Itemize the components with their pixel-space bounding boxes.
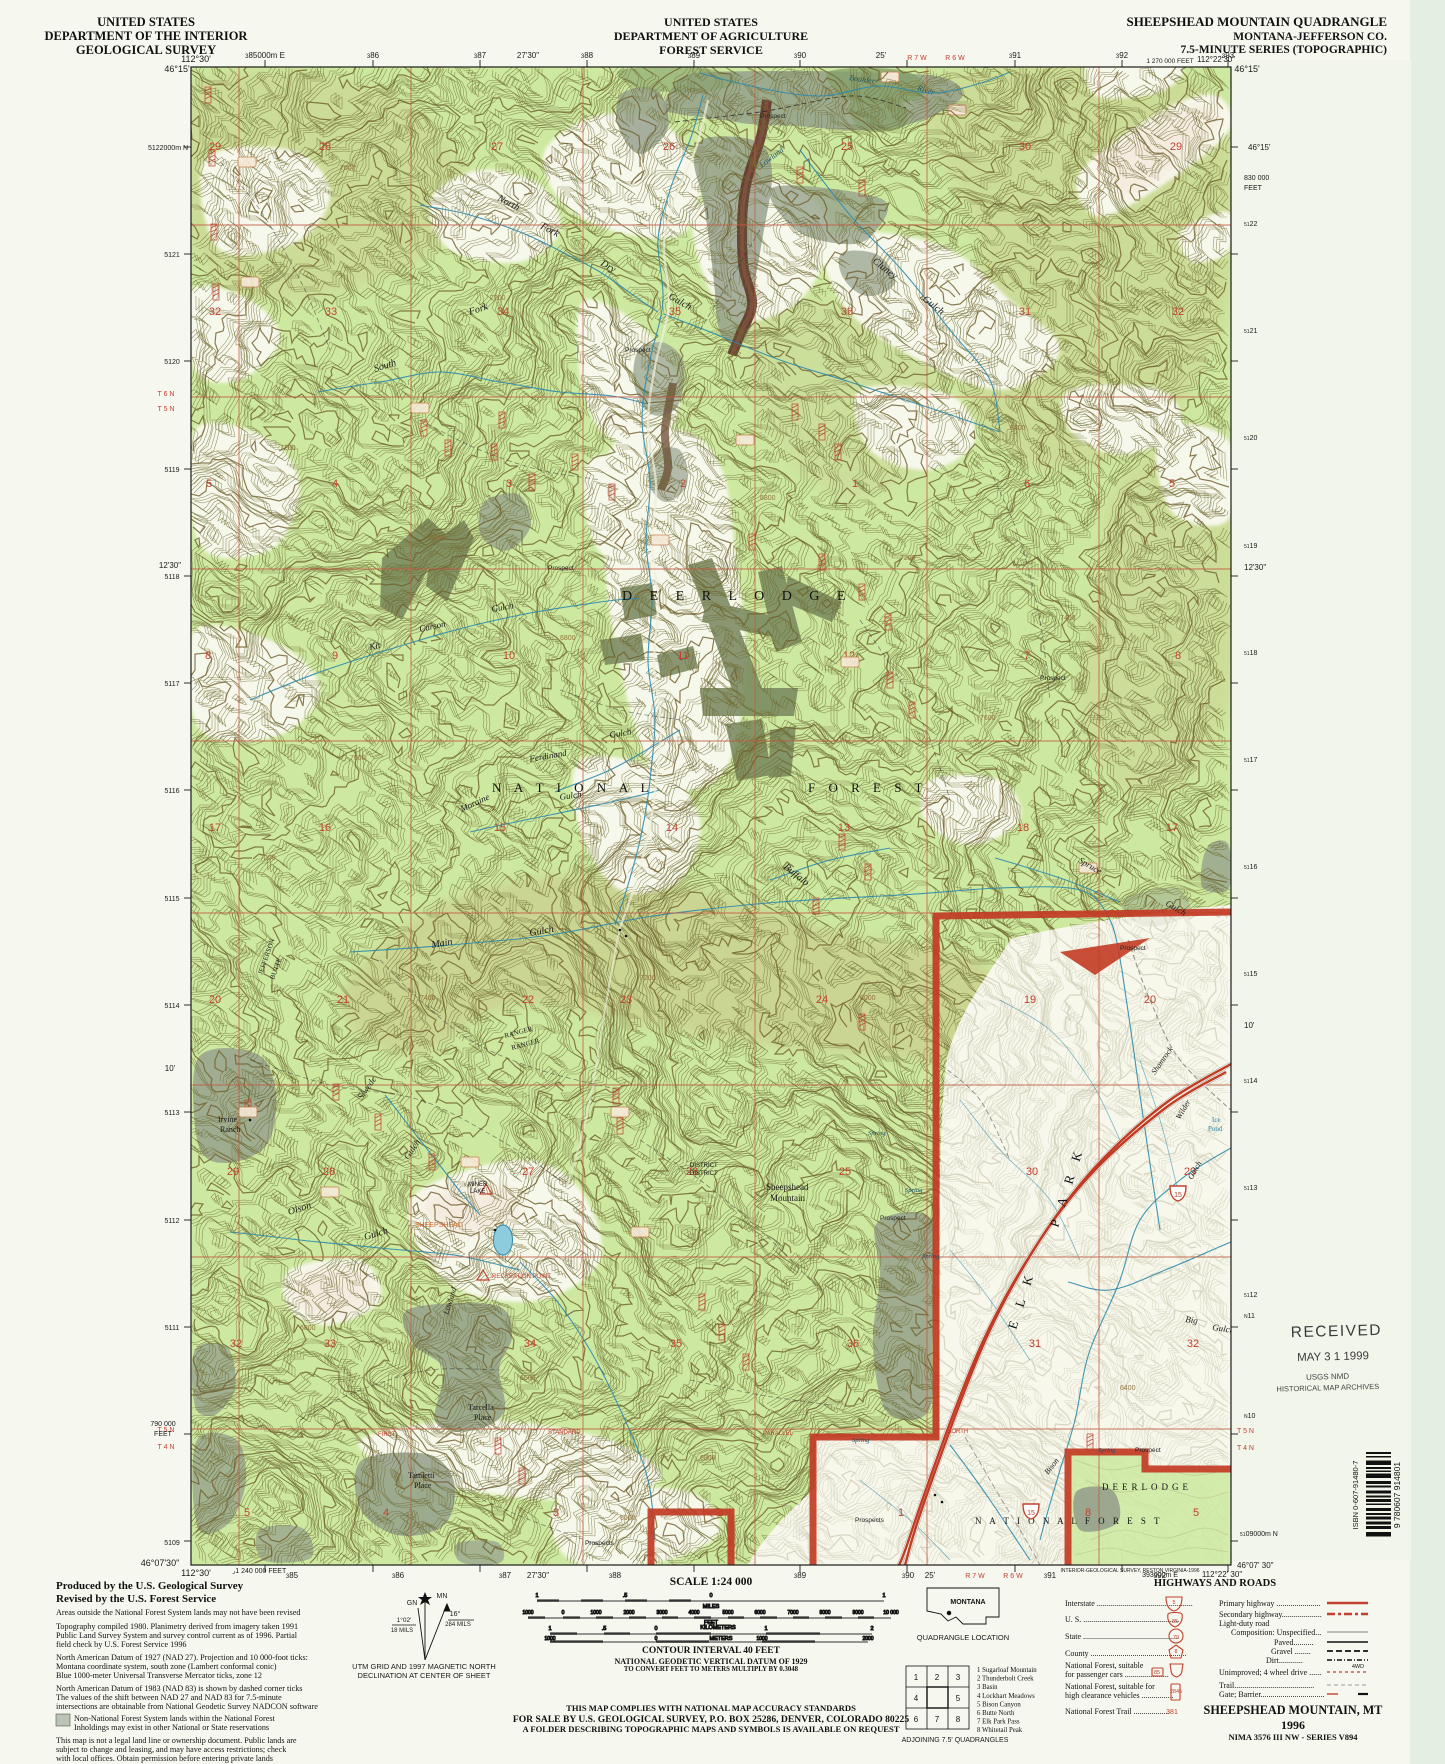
svg-text:7200: 7200 [640, 975, 656, 982]
svg-text:Paved..........: Paved.......... [1274, 1638, 1314, 1647]
svg-text:N10: N10 [1244, 1413, 1256, 1420]
svg-text:7200: 7200 [900, 555, 916, 562]
svg-text:5120: 5120 [1244, 435, 1257, 442]
svg-text:N A T I O N A L: N A T I O N A L [492, 780, 654, 795]
svg-text:R 7 W: R 7 W [965, 1573, 985, 1580]
svg-text:Areas outside the National For: Areas outside the National Forest System… [56, 1608, 300, 1617]
svg-text:8000: 8000 [819, 1610, 830, 1616]
svg-text:5119: 5119 [164, 467, 179, 474]
svg-text:5113: 5113 [164, 1110, 179, 1117]
svg-text:2: 2 [935, 1673, 940, 1682]
svg-text:5109000m N: 5109000m N [1240, 1531, 1278, 1538]
svg-text:5: 5 [206, 478, 212, 490]
svg-text:7: 7 [1024, 650, 1030, 662]
svg-text:16: 16 [319, 822, 331, 834]
svg-text:5112: 5112 [1244, 1292, 1257, 1299]
svg-text:5121: 5121 [164, 252, 180, 259]
svg-text:5: 5 [1193, 1507, 1199, 1519]
svg-text:5 Bison Canyon: 5 Bison Canyon [977, 1701, 1021, 1708]
svg-text:1000: 1000 [590, 1610, 601, 1616]
svg-text:5114: 5114 [1244, 1078, 1257, 1085]
svg-text:5109: 5109 [164, 1540, 180, 1547]
svg-text:24: 24 [816, 994, 828, 1006]
svg-text:3000: 3000 [656, 1610, 667, 1616]
svg-text:TO CONVERT FEET TO METERS MULT: TO CONVERT FEET TO METERS MULTIPLY BY 0.… [624, 1666, 799, 1673]
svg-text:5118: 5118 [1244, 650, 1257, 657]
svg-text:2: 2 [717, 1507, 723, 1519]
svg-text:381: 381 [1166, 1709, 1178, 1716]
svg-text:N A T I O N A L F O R E S T: N A T I O N A L F O R E S T [975, 1516, 1162, 1526]
svg-text:T 6 N: T 6 N [158, 391, 175, 398]
svg-text:19: 19 [1024, 994, 1036, 1006]
svg-text:6600: 6600 [520, 1375, 536, 1382]
svg-text:County .......................: County .................................… [1065, 1649, 1187, 1658]
svg-text:1: 1 [914, 1673, 919, 1682]
svg-text:.5: .5 [623, 1593, 628, 1599]
svg-text:790 000: 790 000 [150, 1421, 175, 1428]
svg-text:16°: 16° [450, 1610, 461, 1618]
svg-text:15: 15 [1174, 1192, 1182, 1199]
svg-text:10': 10' [1244, 1021, 1255, 1030]
svg-text:32: 32 [209, 306, 221, 318]
svg-text:30: 30 [1019, 141, 1031, 153]
svg-text:5112: 5112 [164, 1218, 179, 1225]
svg-text:Produced by the U.S. Geologica: Produced by the U.S. Geological Survey [56, 1580, 244, 1592]
svg-text:15: 15 [494, 822, 506, 834]
svg-text:7000: 7000 [350, 755, 366, 762]
svg-text:National Forest Trail ........: National Forest Trail .................. [1065, 1707, 1170, 1716]
svg-text:RECEIVED: RECEIVED [1291, 1322, 1383, 1341]
svg-text:2 Thunderbolt Creek: 2 Thunderbolt Creek [977, 1676, 1034, 1683]
svg-text:6800: 6800 [760, 495, 776, 502]
svg-text:18: 18 [1017, 822, 1029, 834]
svg-text:7400: 7400 [420, 995, 436, 1002]
svg-text:North American Datum of 1983 (: North American Datum of 1983 (NAD 83) is… [56, 1684, 302, 1693]
svg-text:high clearance vehicles ......: high clearance vehicles ................ [1065, 1691, 1174, 1700]
svg-text:FEET: FEET [1244, 185, 1263, 192]
svg-text:Public Land Survey System and: Public Land Survey System and survey con… [56, 1631, 298, 1640]
svg-text:6800: 6800 [300, 1325, 316, 1332]
svg-text:F O R E S T: F O R E S T [808, 780, 927, 795]
svg-text:Spring: Spring [852, 1437, 870, 1444]
svg-text:Prospect: Prospect [548, 565, 574, 572]
svg-text:8: 8 [956, 1715, 961, 1724]
svg-text:5: 5 [1169, 478, 1175, 490]
svg-text:Montana coordinate system, sou: Montana coordinate system, south zone (L… [56, 1662, 277, 1671]
svg-text:7400: 7400 [1060, 615, 1076, 622]
svg-text:284 MILS: 284 MILS [445, 1622, 471, 1628]
svg-text:15: 15 [1027, 1510, 1035, 1517]
svg-text:.5: .5 [602, 1626, 607, 1632]
svg-text:27: 27 [491, 141, 503, 153]
svg-text:GN: GN [407, 1600, 418, 1607]
svg-text:North American Datum of 1927 (: North American Datum of 1927 (NAD 27). P… [56, 1653, 308, 1662]
svg-text:LAKE: LAKE [470, 1189, 485, 1195]
svg-text:46°07'30": 46°07'30" [141, 1558, 180, 1568]
svg-text:1 Sugarloaf Mountain: 1 Sugarloaf Mountain [977, 1667, 1037, 1674]
svg-text:State ........................: State ..................................… [1065, 1632, 1179, 1641]
svg-text:Prospect: Prospect [1120, 945, 1146, 952]
svg-text:field check by U.S. Forest Ser: field check by U.S. Forest Service 1996 [56, 1640, 187, 1649]
svg-text:with local offices. Obtain pe: with local offices. Obtain permission be… [56, 1754, 273, 1763]
svg-text:5122: 5122 [1244, 221, 1257, 228]
svg-text:3 Basin: 3 Basin [977, 1684, 998, 1691]
svg-text:6600: 6600 [620, 1515, 636, 1522]
svg-text:5115: 5115 [1244, 971, 1257, 978]
svg-text:3: 3 [956, 1673, 961, 1682]
svg-text:FIRST: FIRST [378, 1432, 396, 1438]
svg-text:Composition: Unspecified...: Composition: Unspecified... [1231, 1628, 1321, 1637]
svg-text:5000: 5000 [722, 1610, 733, 1616]
svg-text:Gate; Barrier.................: Gate; Barrier...........................… [1219, 1690, 1325, 1699]
svg-text:Spring: Spring [905, 1187, 923, 1194]
svg-text:National Forest, suitable for: National Forest, suitable for [1065, 1682, 1155, 1691]
svg-text:NORTH: NORTH [947, 1429, 968, 1435]
svg-text:5120: 5120 [164, 359, 180, 366]
svg-text:1996: 1996 [1281, 1718, 1305, 1732]
svg-text:MONTANA: MONTANA [950, 1599, 985, 1606]
svg-text:Unimproved; 4 wheel drive ....: Unimproved; 4 wheel drive ...... [1219, 1668, 1321, 1677]
svg-text:FOREST SERVICE: FOREST SERVICE [659, 43, 763, 57]
svg-text:MONTANA-JEFFERSON CO.: MONTANA-JEFFERSON CO. [1233, 31, 1387, 43]
svg-text:7000: 7000 [340, 165, 356, 172]
svg-text:23: 23 [620, 994, 632, 1006]
svg-text:7000: 7000 [787, 1610, 798, 1616]
svg-text:2845: 2845 [1170, 1689, 1182, 1695]
svg-text:13: 13 [838, 822, 850, 834]
svg-text:USGS NMD: USGS NMD [1306, 1372, 1350, 1382]
svg-text:1: 1 [548, 1626, 551, 1632]
svg-text:5116: 5116 [1244, 864, 1257, 871]
svg-text:5117: 5117 [1244, 757, 1257, 764]
svg-text:Spring: Spring [868, 1130, 886, 1137]
svg-text:830 000: 830 000 [1244, 175, 1269, 182]
svg-text:Secondary highway.............: Secondary highway.................... [1219, 1610, 1322, 1619]
svg-text:5122000m N: 5122000m N [148, 145, 188, 152]
svg-text:6400: 6400 [1120, 1385, 1136, 1392]
svg-text:7 Elk Park Pass: 7 Elk Park Pass [977, 1719, 1020, 1726]
svg-text:8: 8 [1175, 650, 1181, 662]
svg-text:21: 21 [337, 994, 349, 1006]
svg-text:6800: 6800 [430, 535, 446, 542]
svg-text:UTM GRID AND 1997 MAGNETIC NOR: UTM GRID AND 1997 MAGNETIC NORTH [352, 1662, 496, 1671]
svg-text:27'30": 27'30" [527, 1571, 549, 1580]
svg-text:17: 17 [209, 822, 221, 834]
svg-text:5116: 5116 [164, 788, 179, 795]
svg-text:RECREATION POINT: RECREATION POINT [492, 1274, 551, 1280]
svg-text:8 Whitetail Peak: 8 Whitetail Peak [977, 1727, 1023, 1734]
svg-text:32: 32 [1172, 306, 1184, 318]
svg-text:R 6 W: R 6 W [945, 55, 965, 62]
svg-text:5121: 5121 [1244, 328, 1257, 335]
svg-text:1000: 1000 [756, 1636, 767, 1642]
svg-text:KILOMETERS: KILOMETERS [700, 1625, 736, 1631]
svg-text:Revised by the U.S. Forest Ser: Revised by the U.S. Forest Service [56, 1593, 216, 1605]
svg-text:FEET: FEET [154, 1431, 173, 1438]
svg-text:7200: 7200 [260, 855, 276, 862]
svg-text:Spring: Spring [922, 1253, 940, 1260]
svg-text:R 6 W: R 6 W [1003, 1573, 1023, 1580]
svg-text:14: 14 [666, 822, 678, 834]
svg-text:Ranch: Ranch [220, 1125, 240, 1134]
svg-text:Prospects: Prospects [585, 1540, 615, 1547]
svg-text:STANDARD: STANDARD [548, 1430, 581, 1436]
svg-text:3: 3 [553, 1507, 559, 1519]
svg-text:Place: Place [414, 1481, 432, 1490]
svg-text:6000: 6000 [754, 1610, 765, 1616]
svg-text:0: 0 [709, 1593, 712, 1599]
svg-text:6 Butte North: 6 Butte North [977, 1710, 1015, 1717]
svg-text:85: 85 [1154, 1670, 1160, 1676]
svg-text:10': 10' [165, 1064, 176, 1073]
svg-text:11: 11 [677, 650, 688, 662]
svg-text:Light-duty road: Light-duty road [1219, 1619, 1269, 1628]
svg-text:5117: 5117 [164, 681, 179, 688]
svg-text:Ice: Ice [1212, 1116, 1221, 1124]
svg-text:DEPARTMENT OF AGRICULTURE: DEPARTMENT OF AGRICULTURE [614, 29, 808, 43]
svg-text:1: 1 [764, 1626, 767, 1632]
svg-text:7200: 7200 [490, 295, 506, 302]
svg-text:6: 6 [1024, 478, 1030, 490]
svg-text:MN: MN [437, 1593, 448, 1600]
svg-text:36: 36 [847, 1338, 859, 1350]
svg-text:27'30": 27'30" [517, 51, 539, 60]
svg-text:Topography compiled 1980. Pla: Topography compiled 1980. Planimetry der… [56, 1622, 298, 1631]
svg-text:1: 1 [852, 478, 858, 490]
svg-text:22: 22 [522, 994, 534, 1006]
svg-text:17: 17 [1166, 822, 1178, 834]
svg-text:A FOLDER DESCRIBING TOPOGRAPHI: A FOLDER DESCRIBING TOPOGRAPHIC MAPS AND… [522, 1724, 899, 1734]
svg-text:0: 0 [654, 1626, 657, 1632]
svg-text:METERS: METERS [710, 1636, 733, 1642]
svg-text:85: 85 [1172, 1619, 1178, 1625]
svg-text:INTERIOR-GEOLOGICAL SURVEY, RE: INTERIOR-GEOLOGICAL SURVEY, RESTON VIRGI… [1060, 1568, 1199, 1574]
svg-text:12'30": 12'30" [159, 561, 181, 570]
svg-text:29: 29 [227, 1166, 239, 1178]
svg-text:112°30': 112°30' [181, 1568, 211, 1578]
svg-text:32: 32 [1187, 1338, 1199, 1350]
svg-text:5114: 5114 [164, 1003, 179, 1010]
svg-text:DEERLODGE: DEERLODGE [1102, 1482, 1192, 1492]
svg-text:1: 1 [535, 1593, 538, 1599]
svg-text:Gravel ........: Gravel ........ [1271, 1647, 1311, 1656]
svg-text:5113: 5113 [1244, 1185, 1257, 1192]
svg-text:7600: 7600 [980, 715, 996, 722]
svg-text:31: 31 [1019, 306, 1031, 318]
svg-text:25: 25 [839, 1166, 851, 1178]
svg-text:6: 6 [914, 1715, 919, 1724]
svg-text:5115: 5115 [164, 896, 179, 903]
svg-text:4000: 4000 [688, 1610, 699, 1616]
svg-text:T 4 N: T 4 N [1237, 1445, 1254, 1452]
svg-text:Prospects: Prospects [855, 1517, 885, 1524]
svg-text:The values of the shift betwee: The values of the shift between NAD 27 a… [56, 1693, 282, 1702]
svg-text:46°15': 46°15' [1248, 143, 1271, 152]
svg-text:25': 25' [876, 51, 887, 60]
svg-text:Tamietti: Tamietti [408, 1471, 435, 1480]
svg-text:This map is not a legal land l: This map is not a legal land line or own… [56, 1736, 297, 1745]
svg-text:UNITED STATES: UNITED STATES [97, 15, 195, 29]
svg-text:T 4 N: T 4 N [158, 1444, 175, 1451]
svg-text:Prospect: Prospect [625, 347, 651, 354]
svg-text:8: 8 [1174, 1649, 1177, 1655]
svg-text:Prospect: Prospect [1040, 675, 1066, 682]
svg-text:1000: 1000 [522, 1610, 533, 1616]
svg-text:25': 25' [925, 1571, 936, 1580]
svg-text:NATIONAL GEODETIC VERTICAL DAT: NATIONAL GEODETIC VERTICAL DATUM OF 1929 [614, 1657, 807, 1666]
svg-text:MAY 3 1 1999: MAY 3 1 1999 [1297, 1350, 1369, 1364]
svg-text:7: 7 [935, 1715, 940, 1724]
svg-text:10 000: 10 000 [883, 1610, 899, 1616]
svg-text:Non-National Forest System lan: Non-National Forest System lands within … [74, 1714, 276, 1723]
svg-text:subject to change and leasing,: subject to change and leasing, and may h… [56, 1745, 287, 1754]
svg-text:5: 5 [956, 1694, 961, 1703]
svg-text:T 5 N: T 5 N [1237, 1428, 1254, 1435]
svg-text:8: 8 [205, 650, 211, 662]
svg-text:DECLINATION AT CENTER OF SHEET: DECLINATION AT CENTER OF SHEET [358, 1671, 491, 1680]
svg-text:9 780607 914801: 9 780607 914801 [1392, 1462, 1402, 1528]
svg-text:Place: Place [474, 1413, 492, 1422]
svg-text:Blue 1000-meter Universal Tran: Blue 1000-meter Universal Transverse Mer… [56, 1671, 262, 1680]
svg-text:5118: 5118 [164, 574, 179, 581]
svg-text:Prospect: Prospect [1135, 1447, 1161, 1454]
svg-text:N11: N11 [1244, 1313, 1255, 1320]
svg-text:20: 20 [209, 994, 221, 1006]
svg-text:33: 33 [324, 1338, 336, 1350]
svg-text:30: 30 [1026, 1166, 1038, 1178]
svg-text:THIS MAP COMPLIES WITH NATIONA: THIS MAP COMPLIES WITH NATIONAL MAP ACCU… [566, 1703, 856, 1713]
svg-text:46°07' 30": 46°07' 30" [1237, 1561, 1274, 1570]
svg-text:10: 10 [503, 650, 515, 662]
svg-text:SHEEPSHEAD MOUNTAIN, MT: SHEEPSHEAD MOUNTAIN, MT [1204, 1703, 1383, 1717]
svg-text:Irvine: Irvine [218, 1115, 238, 1124]
svg-text:QUADRANGLE LOCATION: QUADRANGLE LOCATION [917, 1633, 1009, 1642]
svg-text:UNITED STATES: UNITED STATES [664, 15, 758, 29]
svg-text:2: 2 [870, 1626, 873, 1632]
svg-text:Prospect: Prospect [760, 113, 786, 120]
svg-text:7200: 7200 [280, 445, 296, 452]
svg-text:National Forest, suitable: National Forest, suitable [1065, 1661, 1144, 1670]
svg-text:SCALE 1:24 000: SCALE 1:24 000 [670, 1576, 753, 1588]
svg-text:4: 4 [914, 1694, 919, 1703]
svg-text:U. S. ........................: U. S. ..................................… [1065, 1615, 1179, 1624]
svg-text:34: 34 [524, 1338, 536, 1350]
svg-text:7.5-MINUTE SERIES (TOPOGRAPHIC: 7.5-MINUTE SERIES (TOPOGRAPHIC) [1181, 44, 1388, 56]
svg-text:CONTOUR INTERVAL 40 FEET: CONTOUR INTERVAL 40 FEET [642, 1646, 781, 1656]
svg-text:Sheepshead: Sheepshead [766, 1182, 809, 1192]
svg-text:SHEEPSHEAD MOUNTAIN QUADRANGLE: SHEEPSHEAD MOUNTAIN QUADRANGLE [1126, 14, 1387, 29]
svg-text:MILES: MILES [703, 1604, 720, 1610]
svg-text:2000: 2000 [862, 1636, 873, 1642]
svg-text:28: 28 [319, 141, 331, 153]
svg-text:25: 25 [841, 141, 853, 153]
svg-text:34: 34 [497, 306, 509, 318]
svg-text:5111: 5111 [165, 1325, 180, 1332]
svg-text:SHEEPSHEAD: SHEEPSHEAD [415, 1222, 463, 1229]
svg-text:31: 31 [1029, 1338, 1041, 1350]
svg-text:Inholdings may exist in other: Inholdings may exist in other National o… [74, 1723, 269, 1732]
svg-text:8000: 8000 [860, 995, 876, 1002]
svg-text:1: 1 [882, 1593, 885, 1599]
svg-text:Mountain: Mountain [770, 1193, 805, 1203]
svg-text:29: 29 [1170, 141, 1182, 153]
svg-text:5: 5 [1172, 1600, 1175, 1606]
svg-text:ADJOINING 7.5' QUADRANGLES: ADJOINING 7.5' QUADRANGLES [902, 1737, 1009, 1744]
svg-text:3: 3 [506, 478, 512, 490]
svg-text:18 MILS: 18 MILS [391, 1628, 413, 1634]
svg-text:Tarcella: Tarcella [468, 1403, 494, 1412]
svg-text:5: 5 [244, 1507, 250, 1519]
svg-text:DISTRICT: DISTRICT [690, 1171, 718, 1177]
svg-text:DISTRICT: DISTRICT [690, 1163, 718, 1169]
svg-text:ISBN 0-607-91480-7: ISBN 0-607-91480-7 [1351, 1461, 1360, 1530]
svg-text:33: 33 [325, 306, 337, 318]
svg-text:D E E R L O D G E: D E E R L O D G E [622, 589, 852, 604]
svg-text:1°02': 1°02' [397, 1616, 412, 1624]
svg-text:R 7 W: R 7 W [907, 55, 927, 62]
svg-text:4WD: 4WD [1352, 1664, 1364, 1670]
svg-text:27: 27 [522, 1166, 534, 1178]
svg-text:Primary highway ..............: Primary highway ...................... [1219, 1599, 1320, 1608]
svg-text:HIGHWAYS AND ROADS: HIGHWAYS AND ROADS [1154, 1578, 1276, 1589]
svg-text:DEPARTMENT OF THE INTERIOR: DEPARTMENT OF THE INTERIOR [45, 29, 249, 43]
svg-text:1: 1 [898, 1507, 904, 1519]
svg-text:385000m E: 385000m E [245, 51, 285, 60]
svg-text:Prospect: Prospect [880, 1215, 906, 1222]
svg-text:Dirt............: Dirt............ [1266, 1656, 1303, 1665]
svg-text:9000: 9000 [852, 1610, 863, 1616]
svg-text:2: 2 [680, 478, 686, 490]
svg-text:4: 4 [383, 1507, 389, 1519]
svg-text:0: 0 [655, 1636, 658, 1642]
svg-text:PARALLEL: PARALLEL [763, 1431, 794, 1437]
svg-text:⌟1 240 000 FEET: ⌟1 240 000 FEET [232, 1568, 287, 1575]
svg-text:T 5 N: T 5 N [158, 406, 175, 413]
svg-text:6800: 6800 [700, 1455, 716, 1462]
svg-text:46°15': 46°15' [164, 64, 190, 74]
svg-text:79: 79 [1173, 1635, 1179, 1641]
svg-text:32: 32 [230, 1338, 242, 1350]
svg-text:12'30": 12'30" [1244, 563, 1266, 572]
svg-text:NIMA 3576 III NW - SERIES V894: NIMA 3576 III NW - SERIES V894 [1228, 1732, 1358, 1742]
svg-text:1000: 1000 [544, 1636, 555, 1642]
svg-text:9: 9 [332, 650, 338, 662]
svg-text:36: 36 [841, 306, 853, 318]
svg-text:MINER: MINER [468, 1182, 488, 1188]
svg-text:6400: 6400 [1010, 425, 1026, 432]
svg-text:26: 26 [663, 141, 675, 153]
svg-text:46°15': 46°15' [1234, 64, 1260, 74]
svg-text:GEOLOGICAL SURVEY: GEOLOGICAL SURVEY [76, 43, 216, 57]
svg-text:20: 20 [1144, 994, 1156, 1006]
svg-text:Spring: Spring [1098, 1447, 1116, 1454]
svg-text:4 Lockhart Meadows: 4 Lockhart Meadows [977, 1693, 1035, 1700]
svg-text:intersections are obtainable f: intersections are obtainable from Nation… [56, 1702, 318, 1711]
svg-text:2000: 2000 [623, 1610, 634, 1616]
svg-text:28: 28 [323, 1166, 335, 1178]
svg-text:Pond: Pond [1208, 1125, 1223, 1133]
svg-text:35: 35 [670, 1338, 682, 1350]
svg-text:6800: 6800 [560, 635, 576, 642]
svg-text:5119: 5119 [1244, 543, 1257, 550]
svg-text:4: 4 [332, 478, 338, 490]
svg-text:112°22'30": 112°22'30" [1197, 55, 1235, 64]
svg-text:Trail.........................: Trail...................................… [1219, 1681, 1314, 1690]
svg-text:0: 0 [562, 1610, 565, 1616]
svg-text:Big: Big [1185, 1314, 1199, 1326]
svg-text:1 270 000 FEET: 1 270 000 FEET [1146, 58, 1193, 65]
